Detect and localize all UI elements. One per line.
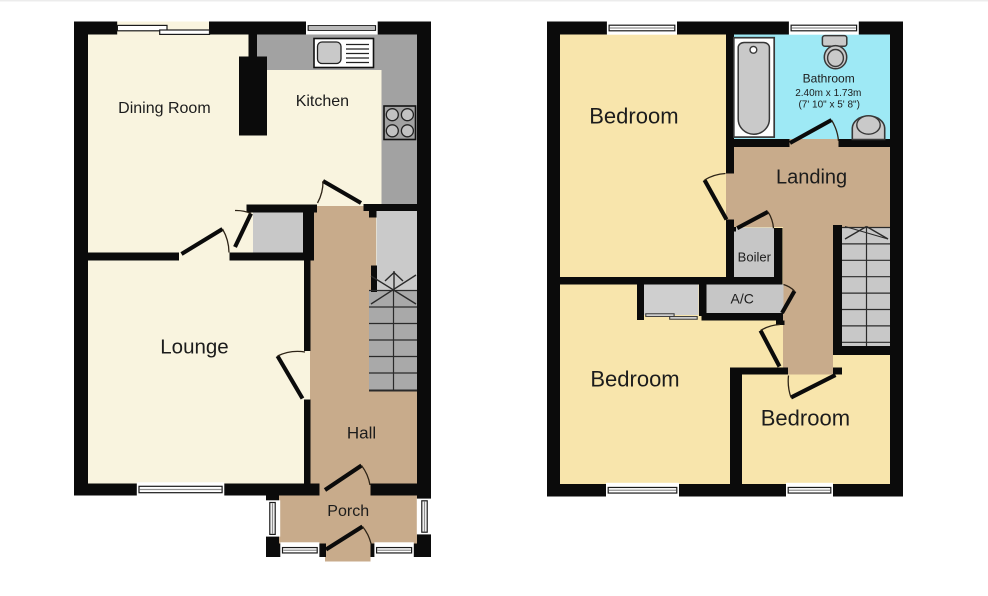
svg-text:A/C: A/C [731,291,754,307]
svg-text:Hall: Hall [347,423,376,442]
svg-text:Boiler: Boiler [738,249,772,264]
svg-text:Porch: Porch [327,503,369,520]
svg-text:Dining Room: Dining Room [118,100,210,117]
svg-text:(7' 10" x 5' 8"): (7' 10" x 5' 8") [798,99,860,110]
svg-text:Bedroom: Bedroom [590,366,679,391]
svg-text:Landing: Landing [776,167,847,189]
svg-text:Kitchen: Kitchen [296,93,349,110]
svg-text:Bedroom: Bedroom [589,103,678,128]
svg-text:2.40m x 1.73m: 2.40m x 1.73m [795,88,861,99]
svg-text:Lounge: Lounge [160,336,228,359]
svg-text:Bathroom: Bathroom [803,71,855,85]
svg-text:Bedroom: Bedroom [761,405,850,430]
